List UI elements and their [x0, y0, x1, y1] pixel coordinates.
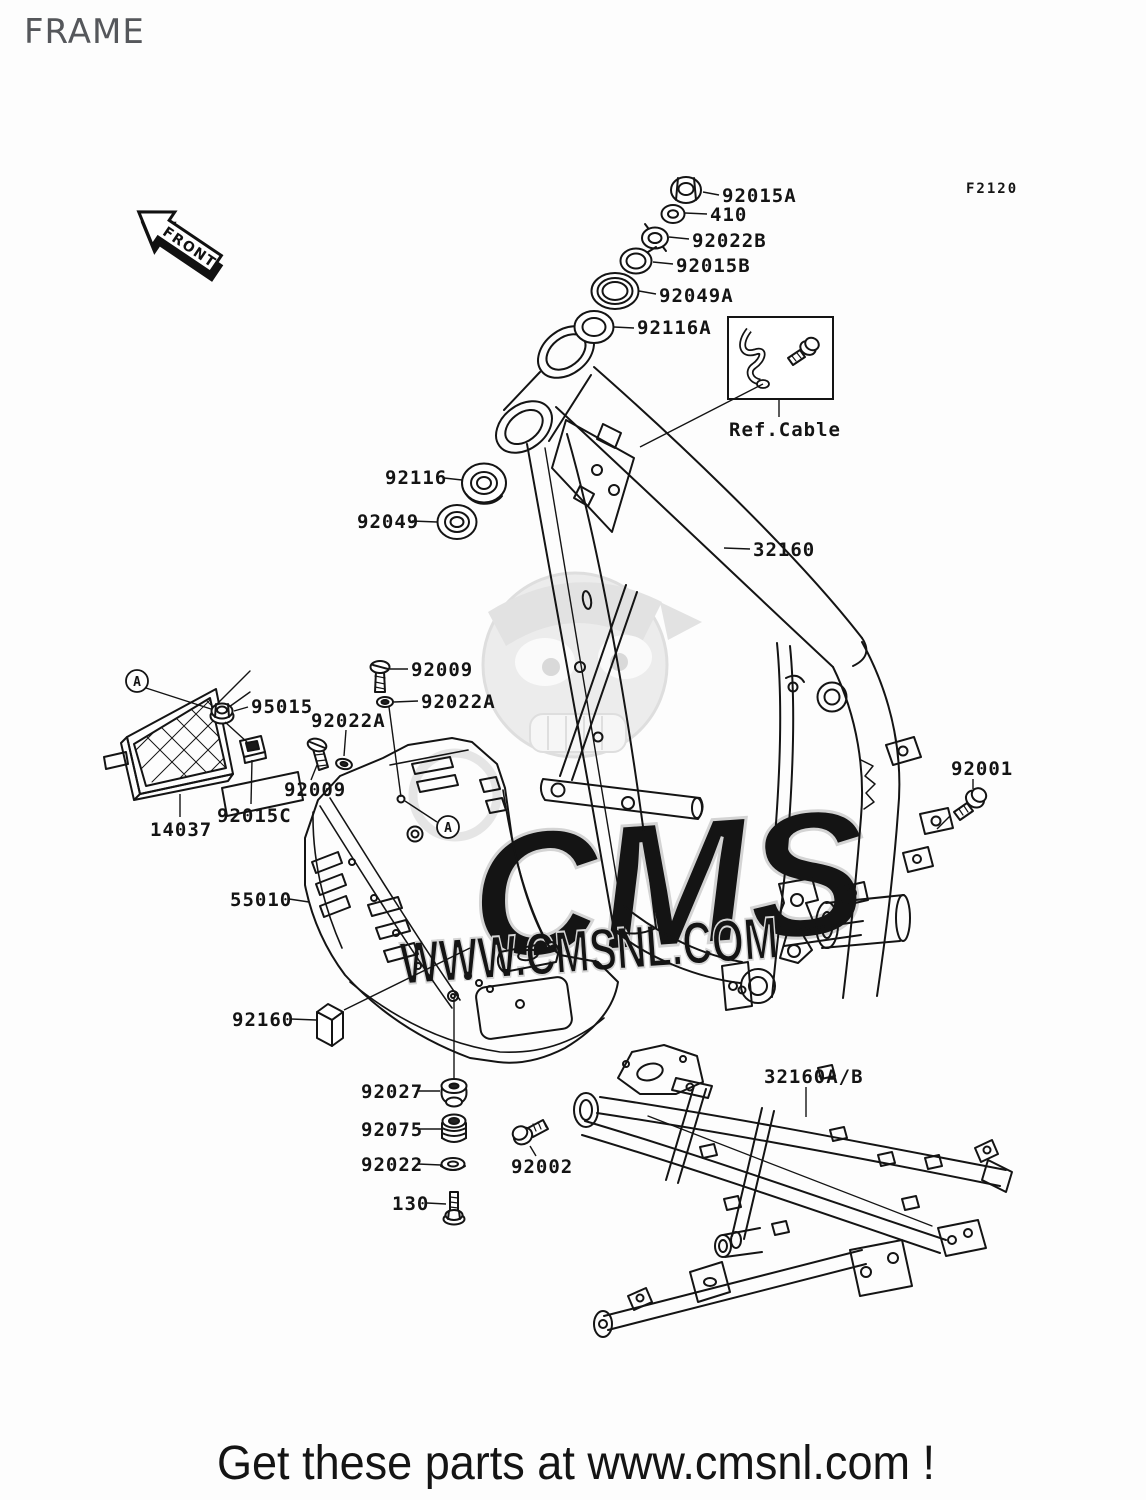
part-label-14037: 14037: [150, 819, 212, 841]
washer-92022a-left: [335, 757, 353, 770]
part-label-92160: 92160: [232, 1009, 294, 1031]
part-label-92009-left: 92009: [284, 779, 346, 801]
part-label-130: 130: [392, 1193, 429, 1215]
part-label-92009-top: 92009: [411, 659, 473, 681]
detail-marker-a2: A: [437, 816, 459, 838]
detail-letter-a1: A: [133, 675, 141, 690]
part-label-92002: 92002: [511, 1156, 573, 1178]
bearing-race-92116a: [575, 311, 614, 343]
screw-92009-top: [371, 661, 390, 692]
part-label-92022a-left: 92022A: [311, 710, 386, 732]
damper-92160: [317, 1004, 343, 1046]
part-label-92116: 92116: [385, 467, 447, 489]
page-title: FRAME: [24, 12, 145, 52]
part-label-92116a: 92116A: [637, 317, 712, 339]
part-label-32160: 32160: [753, 539, 815, 561]
part-label-92015c: 92015C: [217, 805, 292, 827]
front-direction-arrow: FRONT: [124, 195, 233, 290]
stem-nut-92015a: [671, 177, 701, 203]
bearing-92116: [462, 464, 506, 504]
part-label-92022a-top: 92022A: [421, 691, 496, 713]
part-label-92075: 92075: [361, 1119, 423, 1141]
subframe-drawing-32160ab: [574, 1045, 1012, 1337]
detail-letter-a2: A: [444, 821, 452, 836]
part-label-32160ab: 32160A/B: [764, 1066, 864, 1088]
part-label-410: 410: [710, 204, 747, 226]
part-label-95015: 95015: [251, 696, 313, 718]
part-label-92001: 92001: [951, 758, 1013, 780]
part-label-92049: 92049: [357, 511, 419, 533]
bolt-92002: [510, 1120, 548, 1148]
watermark-bandana-knot: [660, 602, 702, 640]
part-label-92049a: 92049A: [659, 285, 734, 307]
washer-92022: [441, 1158, 465, 1170]
washer-92022a-top: [377, 697, 393, 707]
flange-nut-95015: [211, 704, 234, 724]
part-label-92027: 92027: [361, 1081, 423, 1103]
ref-cable-label: Ref.Cable: [729, 419, 841, 441]
part-label-55010: 55010: [230, 889, 292, 911]
detail-marker-a1: A: [126, 670, 148, 692]
figure-code: F2120: [966, 181, 1018, 197]
washer-410: [662, 205, 685, 223]
footer-promo-text: Get these parts at www.cmsnl.com !: [217, 1437, 935, 1490]
part-label-92022b: 92022B: [692, 230, 767, 252]
screw-92009-left: [306, 737, 328, 770]
part-label-92015b: 92015B: [676, 255, 751, 277]
bolt-130: [444, 1192, 465, 1225]
parts-diagram-page: CMS WWW.CMSNL.COM FRAME F2120 FRONT: [0, 0, 1146, 1500]
claw-washer-92015b: [621, 247, 657, 274]
seal-92049: [438, 505, 477, 539]
grommet-92027: [442, 1079, 467, 1107]
bearing-92049a: [592, 273, 639, 309]
bushing-92075: [442, 1115, 466, 1143]
part-label-92022: 92022: [361, 1154, 423, 1176]
bolt-92001: [954, 785, 989, 820]
frame-parts-diagram: CMS WWW.CMSNL.COM FRAME F2120 FRONT: [0, 0, 1146, 1500]
